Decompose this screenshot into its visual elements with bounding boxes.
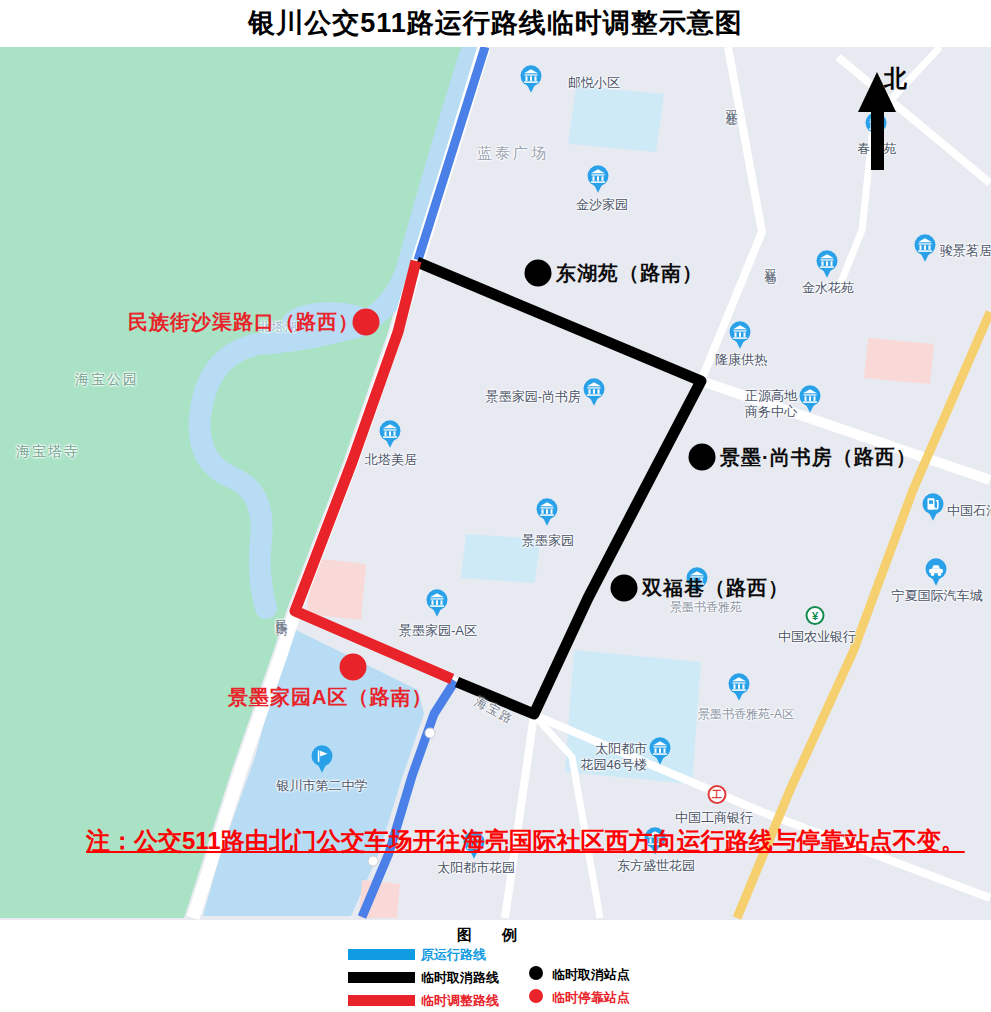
poi-label: 中国工商银行 — [675, 810, 753, 826]
poi-label: 隆康供热 — [715, 352, 767, 368]
page-title: 银川公交511路运行路线临时调整示意图 — [0, 5, 991, 41]
poi-label: 东方盛世花园 — [617, 858, 695, 874]
map-canvas: 邮悦小区金沙家园春 苑金水花苑骏景茗居隆康供热正源高地 商务中心景墨家园-尚书房… — [0, 0, 991, 1012]
north-label: 北 — [884, 63, 907, 94]
poi-label: 景墨家园-A区 — [399, 623, 477, 639]
bank-poi-icon: ¥ — [805, 606, 825, 630]
car-poi-icon — [924, 558, 948, 591]
legend-dot-swatch — [529, 989, 543, 1003]
poi-label: 中国石油 — [947, 503, 991, 519]
temporary-station-label: 景墨家园A区（路南） — [228, 684, 432, 711]
street-label: 双庄巷 — [724, 100, 739, 106]
poi-label: 太阳都市花园 — [437, 860, 515, 876]
legend-title: 图 例 — [457, 926, 517, 945]
poi-label: 银川市第二中学 — [277, 778, 368, 794]
map-overlay: 邮悦小区金沙家园春 苑金水花苑骏景茗居隆康供热正源高地 商务中心景墨家园-尚书房… — [0, 0, 991, 1012]
poi-label: 景墨家园 — [522, 533, 574, 549]
building-poi-icon — [913, 234, 937, 267]
legend-dot-swatch — [529, 966, 543, 980]
legend-line-swatch — [348, 949, 415, 960]
fuel-poi-icon — [921, 493, 945, 526]
poi-label: 金水花苑 — [802, 280, 854, 296]
legend: 图 例 原运行路线临时取消路线临时调整路线临时取消站点临时停靠站点 — [0, 920, 991, 1012]
legend-line-swatch — [348, 972, 415, 983]
building-poi-icon — [519, 65, 543, 98]
cancelled-station-dot — [525, 260, 552, 287]
poi-label: 邮悦小区 — [568, 75, 620, 91]
legend-line-swatch — [348, 995, 415, 1006]
building-poi-icon — [727, 673, 751, 706]
building-poi-icon — [378, 420, 402, 453]
poi-label: 正源高地 商务中心 — [745, 388, 797, 421]
legend-line-label: 临时取消路线 — [421, 969, 499, 987]
svg-text:工: 工 — [711, 789, 722, 800]
poi-label: 金沙家园 — [576, 197, 628, 213]
area-label: 海宝塔寺 — [16, 443, 80, 461]
cancelled-station-label: 景墨·尚书房（路西） — [720, 444, 917, 471]
legend-line-label: 原运行路线 — [421, 946, 486, 964]
poi-label: 景墨家园-尚书房 — [486, 389, 581, 405]
bank-poi-icon: 工 — [707, 785, 727, 809]
street-label: 海宝路 — [472, 695, 516, 728]
cancelled-station-label: 双福巷（路西） — [642, 575, 789, 602]
poi-label: 太阳都市 花园46号楼 — [581, 741, 647, 774]
building-poi-icon — [648, 737, 672, 770]
poi-label: 北塔美居 — [365, 452, 417, 468]
poi-label: 中国农业银行 — [778, 629, 856, 645]
temporary-station-dot — [340, 654, 367, 681]
building-poi-icon — [586, 165, 610, 198]
poi-label: 宁夏国际汽车城 — [892, 588, 983, 604]
school-poi-icon — [310, 745, 334, 778]
building-poi-icon — [425, 589, 449, 622]
street-label: 民族街 — [274, 610, 289, 616]
route-notice-text: 注：公交511路由北门公交车场开往海亮国际社区西方向运行路线与停靠站点不变。 — [86, 825, 965, 857]
building-poi-icon — [798, 385, 822, 418]
legend-dot-label: 临时停靠站点 — [552, 989, 630, 1007]
legend-line-label: 临时调整路线 — [421, 992, 499, 1010]
cancelled-station-dot — [611, 575, 638, 602]
temporary-station-label: 民族街沙渠路口（路西） — [128, 309, 359, 336]
area-label: 海宝公园 — [75, 371, 139, 389]
poi-label: 景墨书香雅苑 — [670, 600, 742, 615]
poi-label: 景墨书香雅苑-A区 — [698, 707, 794, 722]
area-label: 蓝泰广场 — [477, 144, 549, 163]
street-label: 双福巷 — [763, 259, 778, 265]
svg-text:¥: ¥ — [812, 610, 819, 622]
cancelled-station-label: 东湖苑（路南） — [556, 260, 703, 287]
building-poi-icon — [728, 321, 752, 354]
building-poi-icon — [815, 250, 839, 283]
building-poi-icon — [582, 378, 606, 411]
building-poi-icon — [535, 498, 559, 531]
cancelled-station-dot — [689, 444, 716, 471]
legend-dot-label: 临时取消站点 — [552, 966, 630, 984]
poi-label: 骏景茗居 — [940, 243, 991, 259]
